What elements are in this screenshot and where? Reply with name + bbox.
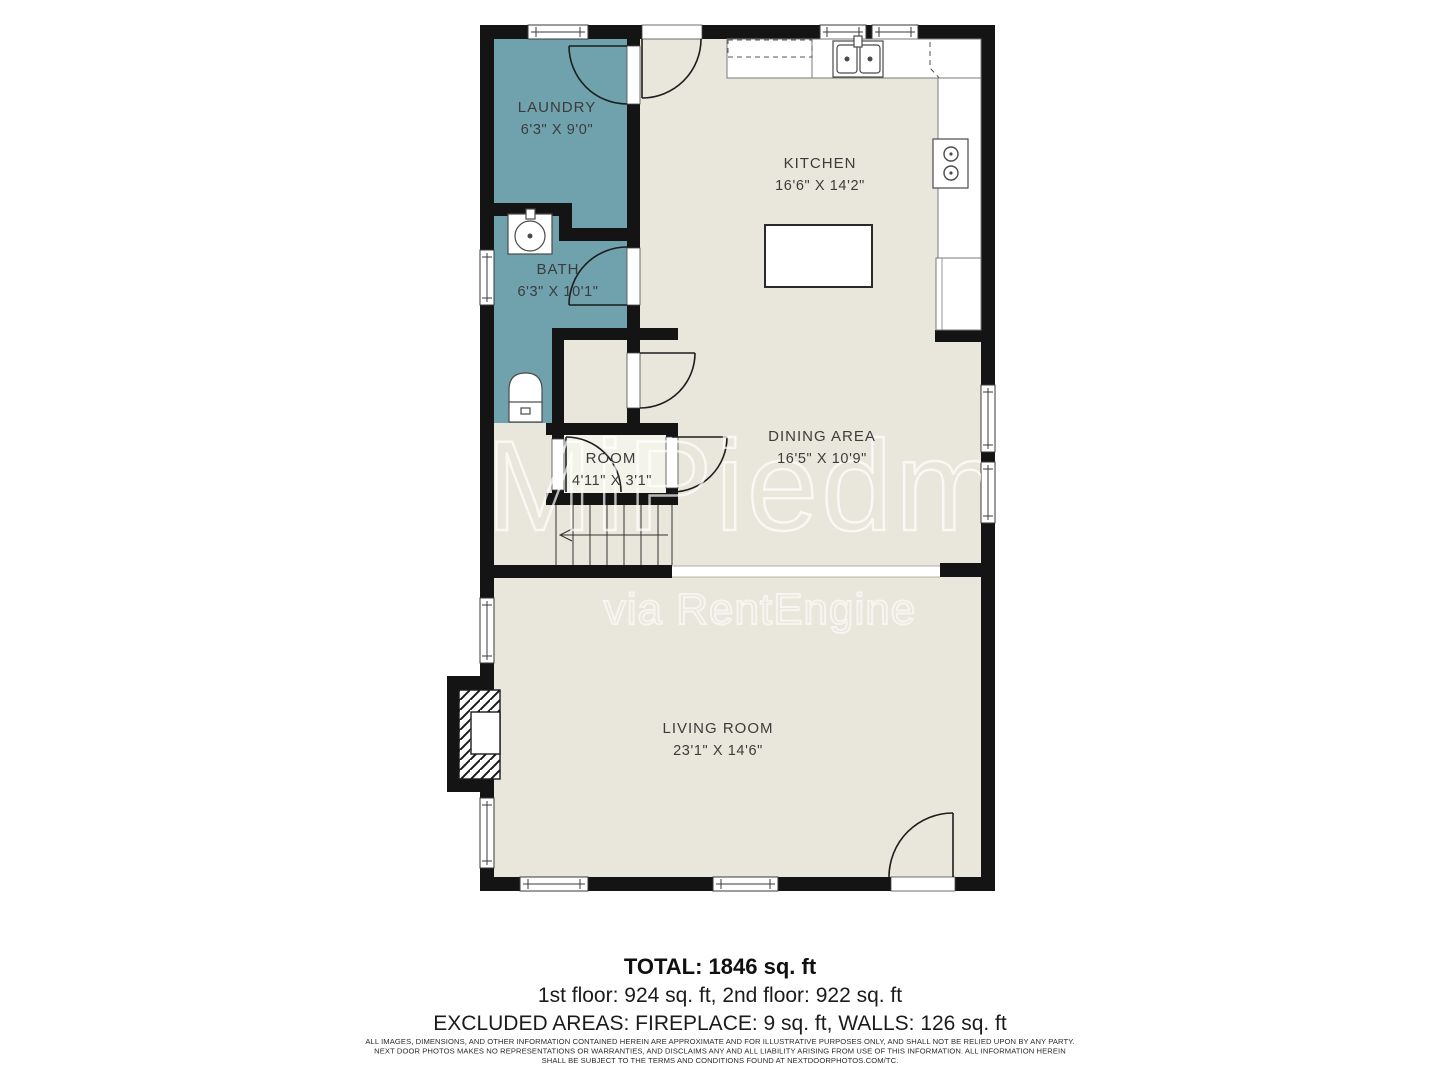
window: [872, 25, 918, 39]
floorplan-drawing: MiPiedmo via RentEngine LAUNDRY 6'3" X 9…: [0, 0, 1440, 1080]
watermark-via-text: via RentEngine: [604, 585, 916, 634]
disclaimer-line-1: ALL IMAGES, DIMENSIONS, AND OTHER INFORM…: [365, 1037, 1074, 1046]
top-entry-door-opening: [642, 25, 702, 39]
laundry-name: LAUNDRY: [518, 99, 596, 116]
window: [480, 598, 494, 663]
area-summary: TOTAL: 1846 sq. ft 1st floor: 924 sq. ft…: [365, 954, 1074, 1065]
window: [713, 877, 778, 891]
floor-areas-text: 1st floor: 924 sq. ft, 2nd floor: 922 sq…: [538, 984, 902, 1007]
bath-door-opening: [627, 248, 640, 305]
room-name: ROOM: [586, 450, 637, 467]
window: [480, 250, 494, 305]
kitchen-sink-icon: [833, 36, 883, 77]
bath-dims: 6'3" X 10'1": [517, 284, 598, 300]
window: [520, 877, 588, 891]
window: [981, 385, 995, 452]
bath-sink-icon: [508, 209, 552, 254]
living-dims: 23'1" X 14'6": [673, 743, 763, 759]
dining-name: DINING AREA: [768, 428, 876, 445]
dining-dims: 16'5" X 10'9": [777, 451, 867, 467]
kitchen-name: KITCHEN: [784, 155, 857, 172]
disclaimer-line-3: SHALL BE SUBJECT TO THE TERMS AND CONDIT…: [542, 1056, 899, 1065]
disclaimer-line-2: NEXT DOOR PHOTOS MAKES NO REPRESENTATION…: [374, 1047, 1066, 1056]
window: [528, 25, 588, 39]
window: [981, 462, 995, 523]
bath-name: BATH: [537, 261, 580, 278]
excluded-areas-text: EXCLUDED AREAS: FIREPLACE: 9 sq. ft, WAL…: [433, 1012, 1007, 1035]
window: [480, 798, 494, 868]
hall-door-opening: [627, 353, 640, 408]
stove-icon: [933, 139, 968, 188]
kitchen-dims: 16'6" X 14'2": [775, 178, 865, 194]
front-entry-door-opening: [891, 877, 955, 891]
base-cabinet: [936, 258, 981, 330]
living-name: LIVING ROOM: [662, 720, 773, 737]
total-area-text: TOTAL: 1846 sq. ft: [624, 954, 817, 979]
floorplan-page: MiPiedmo via RentEngine LAUNDRY 6'3" X 9…: [0, 0, 1440, 1080]
fireplace-icon: [459, 690, 500, 779]
laundry-door-opening: [627, 46, 640, 104]
kitchen-island: [765, 225, 872, 287]
room-dims: 4'11" X 3'1": [572, 473, 652, 489]
hall-floor: [562, 340, 627, 423]
dining-living-opening: [672, 566, 940, 577]
laundry-dims: 6'3" X 9'0": [521, 122, 593, 138]
